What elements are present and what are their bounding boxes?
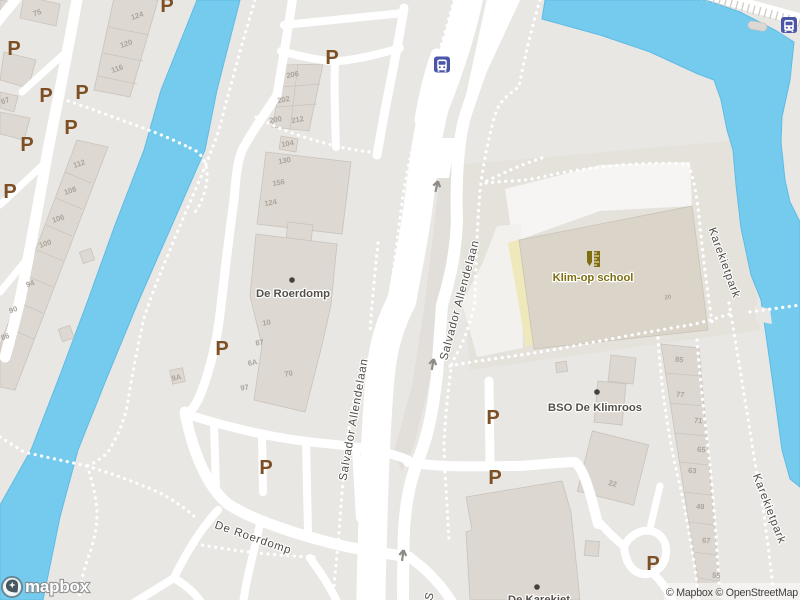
svg-text:mapbox: mapbox — [25, 577, 90, 596]
svg-text:P: P — [325, 47, 338, 69]
svg-text:BSO De Klimroos: BSO De Klimroos — [548, 402, 642, 414]
svg-text:65: 65 — [697, 445, 706, 455]
svg-text:71: 71 — [694, 416, 703, 426]
svg-text:P: P — [3, 181, 16, 203]
svg-text:P: P — [64, 117, 77, 139]
svg-text:P: P — [646, 553, 659, 575]
svg-text:10: 10 — [262, 317, 272, 327]
svg-text:P: P — [7, 38, 20, 60]
svg-text:P: P — [215, 338, 228, 360]
svg-text:P: P — [259, 457, 272, 479]
svg-text:87: 87 — [255, 337, 265, 347]
svg-text:97: 97 — [240, 382, 250, 392]
svg-text:49: 49 — [696, 502, 705, 512]
svg-text:P: P — [75, 82, 88, 104]
svg-text:Klim-op school: Klim-op school — [553, 272, 634, 284]
svg-text:P: P — [39, 85, 52, 107]
svg-text:77: 77 — [676, 390, 685, 400]
svg-text:P: P — [488, 467, 501, 489]
svg-text:67: 67 — [702, 536, 711, 546]
svg-text:55: 55 — [712, 571, 721, 581]
svg-text:P: P — [160, 0, 173, 17]
svg-text:De Roerdomp: De Roerdomp — [256, 288, 330, 300]
svg-text:70: 70 — [284, 368, 294, 378]
svg-text:63: 63 — [688, 466, 697, 476]
svg-text:© Mapbox © OpenStreetMap: © Mapbox © OpenStreetMap — [666, 587, 798, 599]
svg-text:De Karekiet: De Karekiet — [508, 594, 570, 600]
svg-text:P: P — [486, 407, 499, 429]
svg-text:85: 85 — [675, 355, 684, 365]
svg-text:P: P — [20, 134, 33, 156]
